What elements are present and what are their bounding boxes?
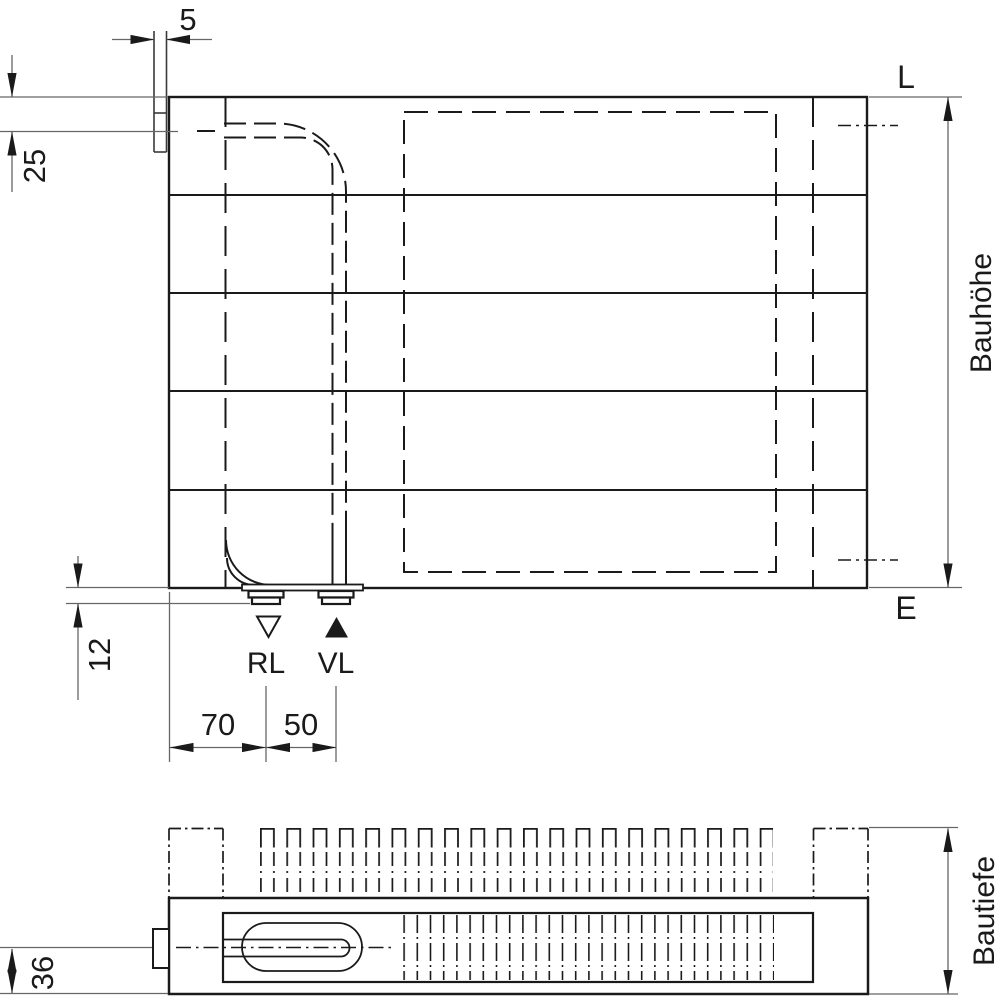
return-pipe-elbow (226, 540, 271, 585)
supply-stub-body (322, 598, 350, 605)
dim-top-offset-value: 25 (17, 149, 52, 183)
supply-flow-icon (325, 617, 348, 638)
connection-plate (242, 585, 363, 591)
plan-inner-fins (403, 915, 774, 980)
return-flow-icon (257, 617, 280, 638)
return-label: RL (247, 647, 285, 680)
top-level-label: L (897, 59, 915, 95)
drawing-canvas: RL VL 5 25 12 (0, 0, 1000, 1000)
convector-fin-hidden-lines (260, 852, 773, 897)
return-stub-body (252, 598, 280, 605)
dim-rl-to-vl-value: 50 (284, 707, 318, 742)
dim-depth (869, 828, 958, 995)
panel-seam-lines (169, 195, 867, 490)
bottom-level-label: E (895, 590, 916, 626)
supply-label: VL (318, 647, 355, 680)
radiator-technical-drawing: RL VL 5 25 12 (0, 0, 1000, 1000)
front-view: RL VL 5 25 12 (0, 2, 998, 762)
plan-bracket-tab (153, 929, 169, 968)
plan-view: 36 Bautiefe (0, 828, 1000, 995)
convector-fin-teeth (260, 828, 773, 848)
supply-pipe-hidden (197, 124, 346, 585)
dim-edge-to-rl-value: 70 (201, 707, 235, 742)
connection-block (242, 585, 363, 605)
hidden-panel-rect (404, 112, 776, 572)
dim-center-offset-value: 36 (25, 956, 60, 990)
wall-bracket-tab (154, 31, 167, 152)
front-body-outline (169, 97, 867, 588)
dim-height-label: Bauhöhe (965, 253, 998, 373)
dim-stub-drop-value: 12 (82, 638, 117, 672)
dim-height (869, 97, 962, 588)
dim-tab-width-value: 5 (179, 2, 196, 37)
side-cover-right (814, 829, 869, 898)
dim-depth-label: Bautiefe (968, 856, 1000, 966)
hidden-edge-lines (226, 97, 814, 588)
side-cover-left (169, 829, 223, 898)
dim-stub-drop (66, 556, 250, 700)
